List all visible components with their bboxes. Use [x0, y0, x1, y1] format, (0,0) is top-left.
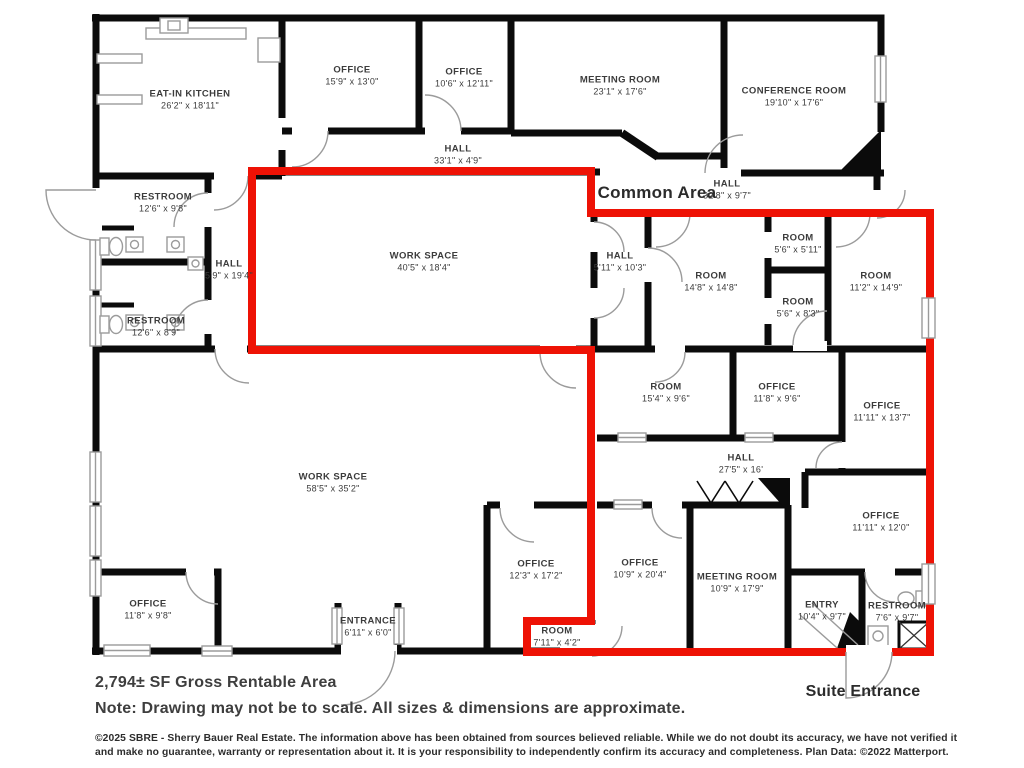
room-label-work-space-main: WORK SPACE58'5" x 35'2" [299, 471, 368, 494]
room-label-office-10x20: OFFICE10'9" x 20'4" [613, 557, 666, 580]
suite-entrance-label: Suite Entrance [806, 683, 921, 701]
room-label-office-11x13: OFFICE11'11" x 13'7" [853, 400, 910, 423]
gross-rentable-area-text: 2,794± SF Gross Rentable Area [95, 674, 337, 692]
room-label-room-11x14: ROOM11'2" x 14'9" [850, 270, 903, 293]
room-label-office-11x9: OFFICE11'8" x 9'6" [753, 381, 800, 404]
room-label-conference-room: CONFERENCE ROOM19'10" x 17'6" [742, 85, 847, 108]
room-label-office-top-2: OFFICE10'6" x 12'11" [435, 66, 493, 89]
room-label-eat-in-kitchen: EAT-IN KITCHEN26'2" x 18'11" [150, 88, 231, 111]
room-label-restroom-upper: RESTROOM12'6" x 9'8" [134, 191, 192, 214]
scale-note-text: Note: Drawing may not be to scale. All s… [95, 700, 685, 718]
room-label-office-12x17: OFFICE12'3" x 17'2" [509, 558, 562, 581]
floor-plan-page: EAT-IN KITCHEN26'2" x 18'11"OFFICE15'9" … [0, 0, 1024, 768]
disclaimer-line-1: ©2025 SBRE - Sherry Bauer Real Estate. T… [95, 733, 957, 744]
room-label-office-11x12: OFFICE11'11" x 12'0" [852, 510, 909, 533]
disclaimer-line-2: and make no guarantee, warranty or repre… [95, 747, 949, 758]
room-label-office-11x9-bl: OFFICE11'8" x 9'8" [124, 598, 171, 621]
floor-plan-drawing [0, 0, 1024, 768]
room-label-room-small-2: ROOM5'6" x 8'3" [777, 296, 820, 319]
room-label-room-14x14: ROOM14'8" x 14'8" [684, 270, 737, 293]
room-label-hall-suite: HALL5'11" x 10'3" [594, 250, 647, 273]
room-label-meeting-room-top: MEETING ROOM23'1" x 17'6" [580, 74, 660, 97]
room-label-hall-top: HALL33'1" x 4'9" [434, 143, 482, 166]
shower-stall [899, 622, 929, 649]
room-label-room-small-1: ROOM5'6" x 5'11" [774, 232, 821, 255]
room-label-room-7x4: ROOM7'11" x 4'2" [533, 625, 580, 648]
room-label-office-top-1: OFFICE15'9" x 13'0" [325, 64, 378, 87]
room-label-room-15x9: ROOM15'4" x 9'6" [642, 381, 690, 404]
room-label-hall-lower: HALL27'5" x 16' [719, 452, 763, 475]
double-door-marks [697, 481, 753, 503]
room-label-entry: ENTRY10'4" x 9'7" [798, 599, 846, 622]
room-label-entrance: ENTRANCE6'11" x 6'0" [340, 615, 396, 638]
room-label-work-space-suite: WORK SPACE40'5" x 18'4" [390, 250, 459, 273]
room-label-restroom-suite: RESTROOM7'6" x 9'7" [868, 600, 926, 623]
room-label-hall-left: HALL5'9" x 19'4" [205, 258, 253, 281]
common-area-label: Common Area [598, 183, 717, 203]
room-label-meeting-room-lower: MEETING ROOM10'9" x 17'9" [697, 571, 777, 594]
room-label-restroom-lower: RESTROOM12'6" x 8'9" [127, 315, 185, 338]
